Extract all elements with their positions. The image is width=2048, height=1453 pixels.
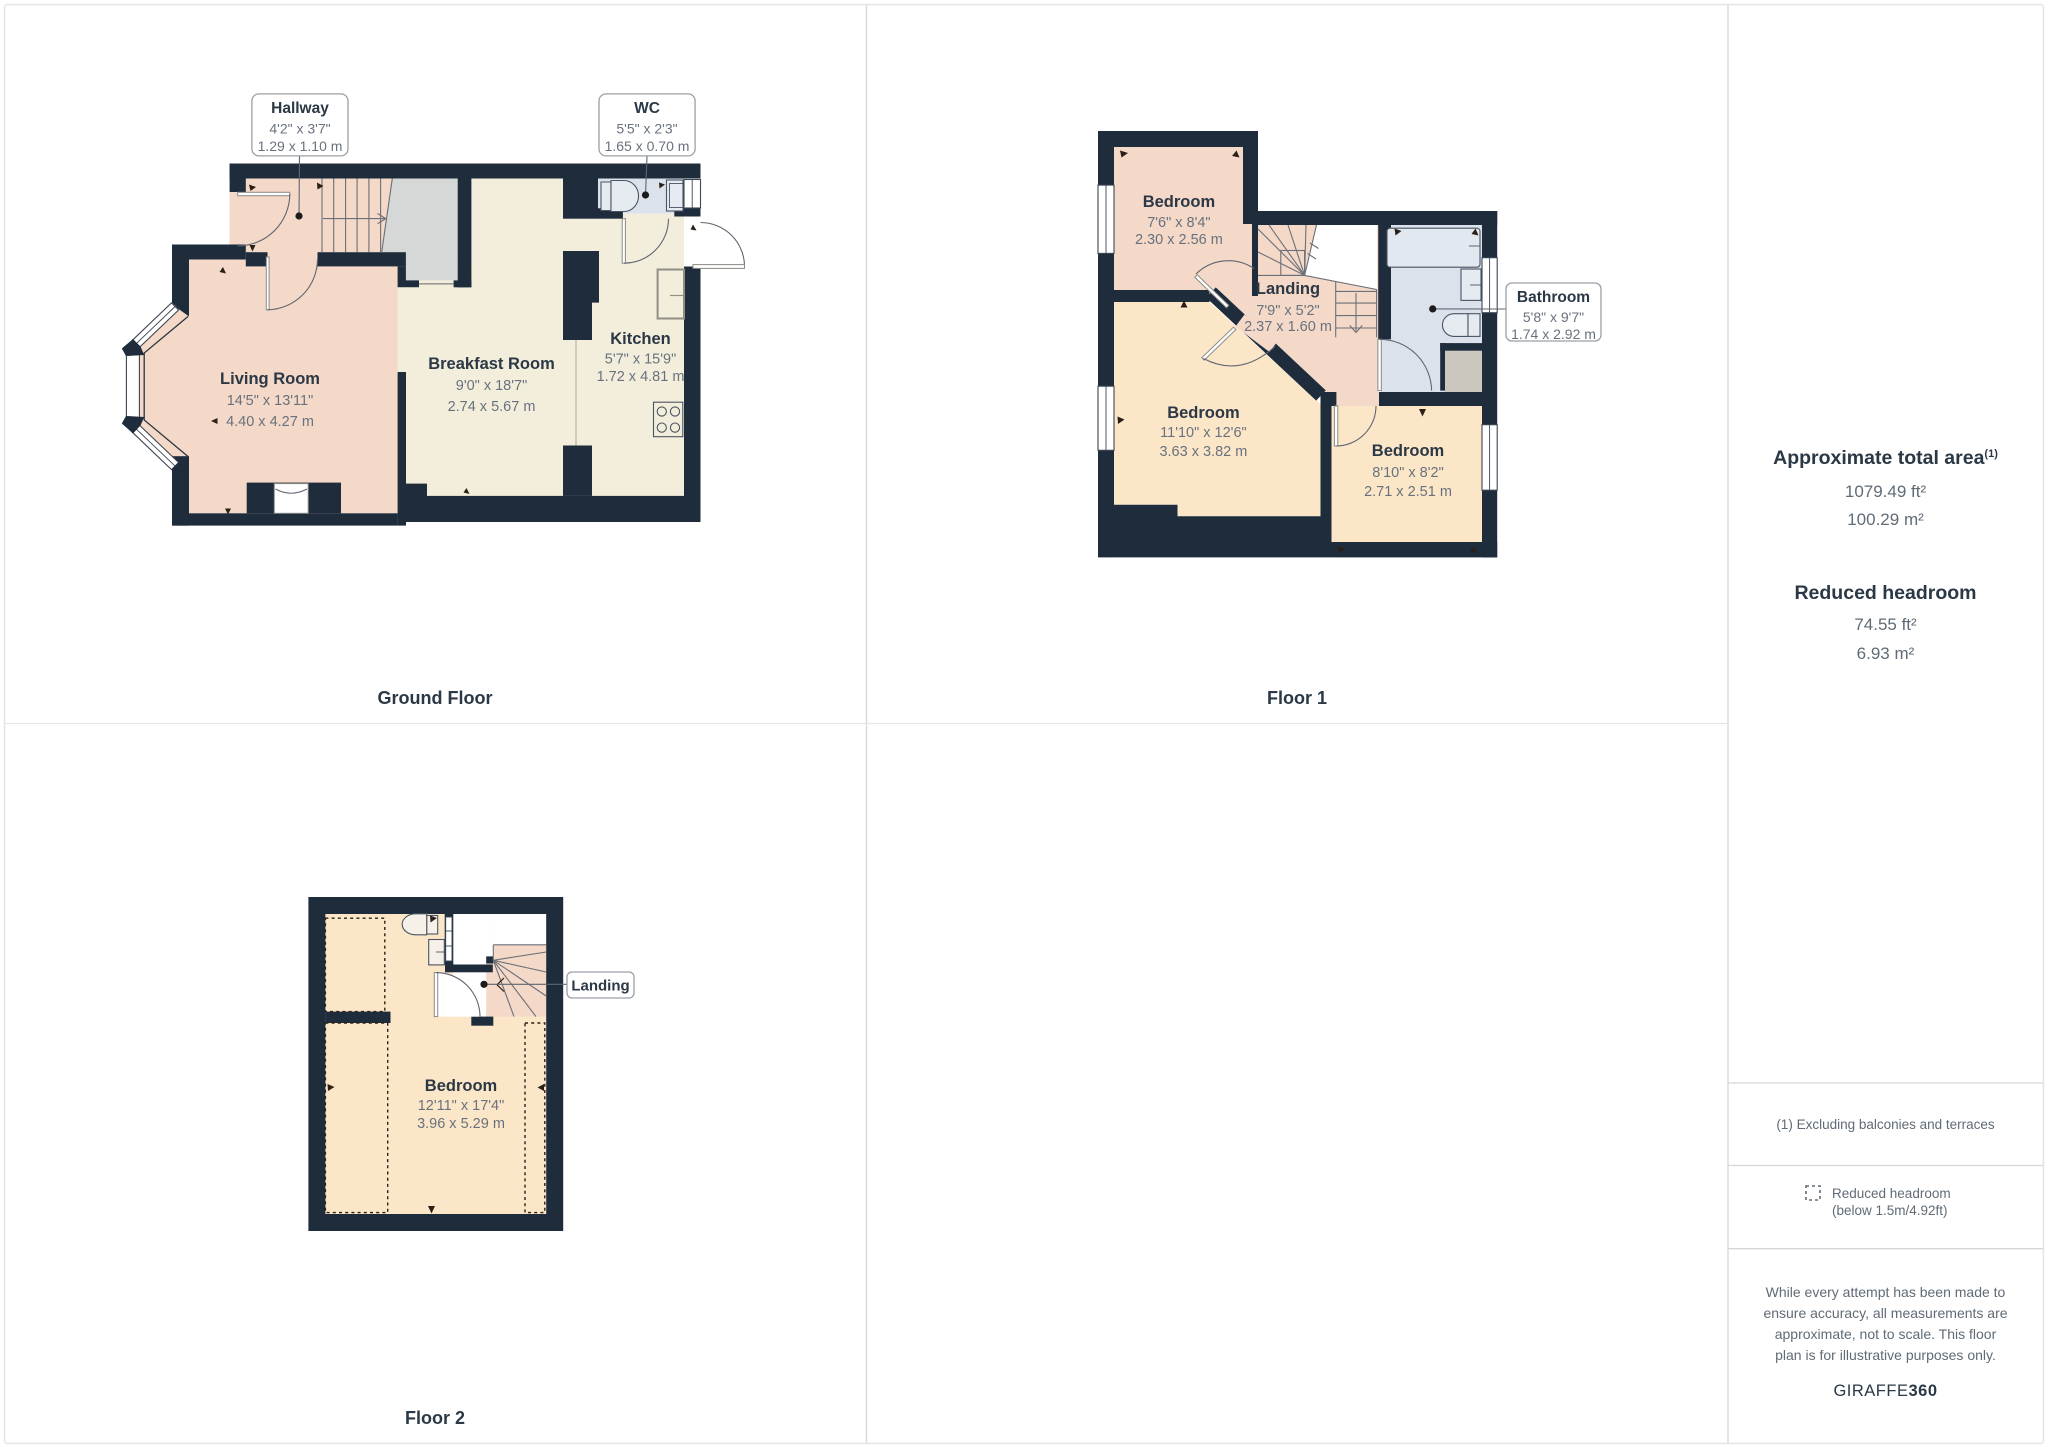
svg-text:11'10" x 12'6": 11'10" x 12'6": [1160, 425, 1247, 441]
svg-text:7'9" x 5'2": 7'9" x 5'2": [1256, 303, 1319, 319]
svg-text:Breakfast Room: Breakfast Room: [428, 355, 555, 373]
svg-text:Reduced headroom: Reduced headroom: [1794, 582, 1976, 604]
svg-text:Floor 2: Floor 2: [405, 1408, 465, 1428]
svg-text:Living Room: Living Room: [220, 370, 320, 388]
svg-text:Landing: Landing: [571, 978, 629, 995]
svg-text:100.29 m²: 100.29 m²: [1847, 510, 1924, 529]
svg-text:4.40 x 4.27 m: 4.40 x 4.27 m: [226, 414, 314, 430]
svg-text:(below 1.5m/4.92ft): (below 1.5m/4.92ft): [1832, 1203, 1948, 1218]
svg-text:Hallway: Hallway: [271, 100, 329, 117]
svg-text:74.55 ft²: 74.55 ft²: [1854, 615, 1917, 634]
svg-text:5'8" x 9'7": 5'8" x 9'7": [1523, 309, 1584, 325]
svg-text:9'0" x 18'7": 9'0" x 18'7": [456, 378, 527, 394]
svg-text:GIRAFFE360: GIRAFFE360: [1833, 1382, 1937, 1400]
svg-text:Bedroom: Bedroom: [1143, 193, 1215, 211]
svg-text:12'11" x 17'4": 12'11" x 17'4": [418, 1098, 505, 1114]
svg-text:Ground Floor: Ground Floor: [378, 688, 493, 708]
svg-text:Landing: Landing: [1256, 280, 1320, 298]
svg-text:2.37 x 1.60 m: 2.37 x 1.60 m: [1244, 319, 1332, 335]
svg-text:approximate, not to scale. Thi: approximate, not to scale. This floor: [1775, 1326, 1997, 1342]
svg-text:WC: WC: [634, 100, 660, 117]
svg-text:8'10" x 8'2": 8'10" x 8'2": [1372, 465, 1443, 481]
svg-text:3.63 x 3.82 m: 3.63 x 3.82 m: [1159, 444, 1247, 460]
svg-text:14'5" x 13'11": 14'5" x 13'11": [227, 393, 314, 409]
svg-text:1.29 x 1.10 m: 1.29 x 1.10 m: [258, 138, 343, 154]
svg-text:2.71 x 2.51 m: 2.71 x 2.51 m: [1364, 484, 1452, 500]
svg-text:Bedroom: Bedroom: [425, 1077, 497, 1095]
svg-text:Bedroom: Bedroom: [1167, 404, 1239, 422]
svg-text:2.30 x 2.56 m: 2.30 x 2.56 m: [1135, 232, 1223, 248]
svg-text:(1) Excluding balconies and te: (1) Excluding balconies and terraces: [1776, 1117, 1995, 1132]
svg-text:1.72 x 4.81 m: 1.72 x 4.81 m: [597, 369, 685, 385]
svg-text:5'5" x 2'3": 5'5" x 2'3": [616, 121, 677, 137]
svg-text:4'2" x 3'7": 4'2" x 3'7": [269, 121, 330, 137]
svg-text:ensure accuracy, all measureme: ensure accuracy, all measurements are: [1763, 1305, 2007, 1321]
svg-text:Reduced headroom: Reduced headroom: [1832, 1186, 1951, 1201]
svg-text:1.74 x 2.92 m: 1.74 x 2.92 m: [1511, 326, 1596, 342]
svg-text:2.74 x 5.67 m: 2.74 x 5.67 m: [448, 399, 536, 415]
svg-text:3.96 x 5.29 m: 3.96 x 5.29 m: [417, 1116, 505, 1132]
svg-text:5'7" x 15'9": 5'7" x 15'9": [605, 352, 676, 368]
svg-text:Kitchen: Kitchen: [610, 330, 671, 348]
svg-text:Bedroom: Bedroom: [1372, 442, 1444, 460]
svg-text:Floor 1: Floor 1: [1267, 688, 1327, 708]
svg-text:Bathroom: Bathroom: [1517, 289, 1590, 306]
svg-text:1.65 x 0.70 m: 1.65 x 0.70 m: [605, 138, 690, 154]
svg-text:7'6" x 8'4": 7'6" x 8'4": [1147, 215, 1210, 231]
svg-text:6.93 m²: 6.93 m²: [1857, 644, 1915, 663]
svg-text:Approximate total area(1): Approximate total area(1): [1773, 447, 1998, 469]
svg-text:1079.49 ft²: 1079.49 ft²: [1845, 482, 1927, 501]
svg-text:plan is for illustrative purpo: plan is for illustrative purposes only.: [1775, 1347, 1996, 1363]
svg-text:While every attempt has been m: While every attempt has been made to: [1766, 1284, 2006, 1300]
